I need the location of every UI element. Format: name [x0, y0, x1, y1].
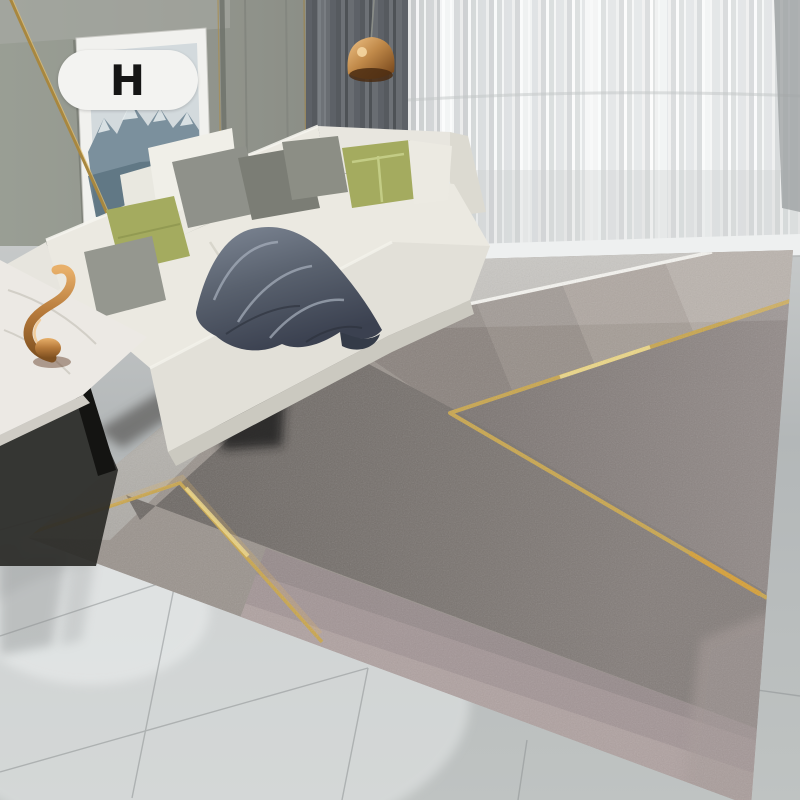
pillow-white-chaise	[408, 140, 452, 204]
product-photo-living-room-rug: H	[0, 0, 800, 800]
variant-label-pill: H	[58, 50, 198, 110]
sculpture-bulb	[35, 338, 61, 358]
lamp-reflection	[357, 47, 367, 57]
variant-letter: H	[110, 56, 146, 105]
scene-canvas	[0, 0, 800, 800]
lamp-opening	[349, 68, 393, 82]
pillow-gray-chaise	[282, 136, 348, 200]
